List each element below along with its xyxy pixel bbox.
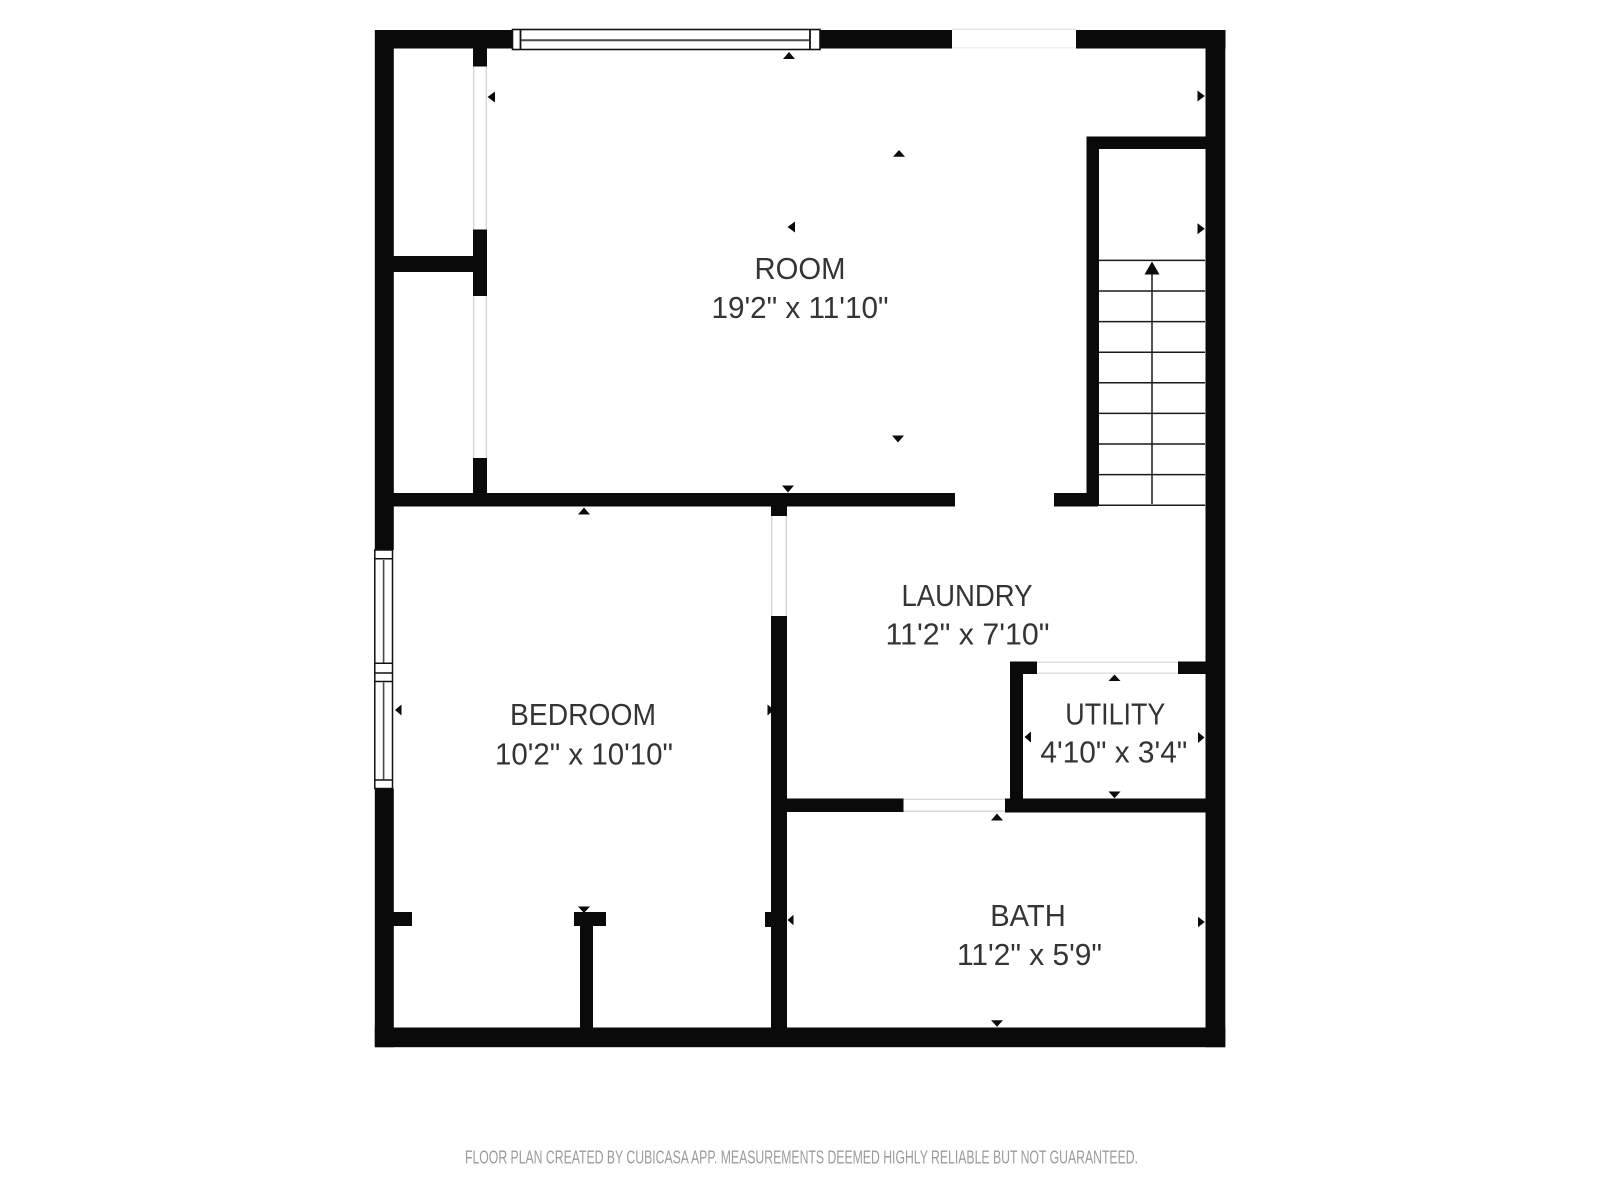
svg-text:11'2" x 5'9": 11'2" x 5'9"	[957, 938, 1102, 972]
svg-text:ROOM: ROOM	[755, 252, 846, 286]
svg-text:FLOOR PLAN CREATED BY CUBICASA: FLOOR PLAN CREATED BY CUBICASA APP. MEAS…	[465, 1147, 1138, 1168]
svg-text:LAUNDRY: LAUNDRY	[902, 579, 1033, 613]
svg-text:4'10" x 3'4": 4'10" x 3'4"	[1040, 736, 1187, 770]
svg-text:10'2" x 10'10": 10'2" x 10'10"	[495, 738, 673, 772]
svg-text:BATH: BATH	[990, 899, 1066, 933]
svg-text:UTILITY: UTILITY	[1065, 698, 1165, 732]
svg-text:19'2" x 11'10": 19'2" x 11'10"	[712, 291, 889, 325]
svg-text:BEDROOM: BEDROOM	[510, 698, 656, 732]
svg-text:11'2" x 7'10": 11'2" x 7'10"	[886, 618, 1050, 652]
